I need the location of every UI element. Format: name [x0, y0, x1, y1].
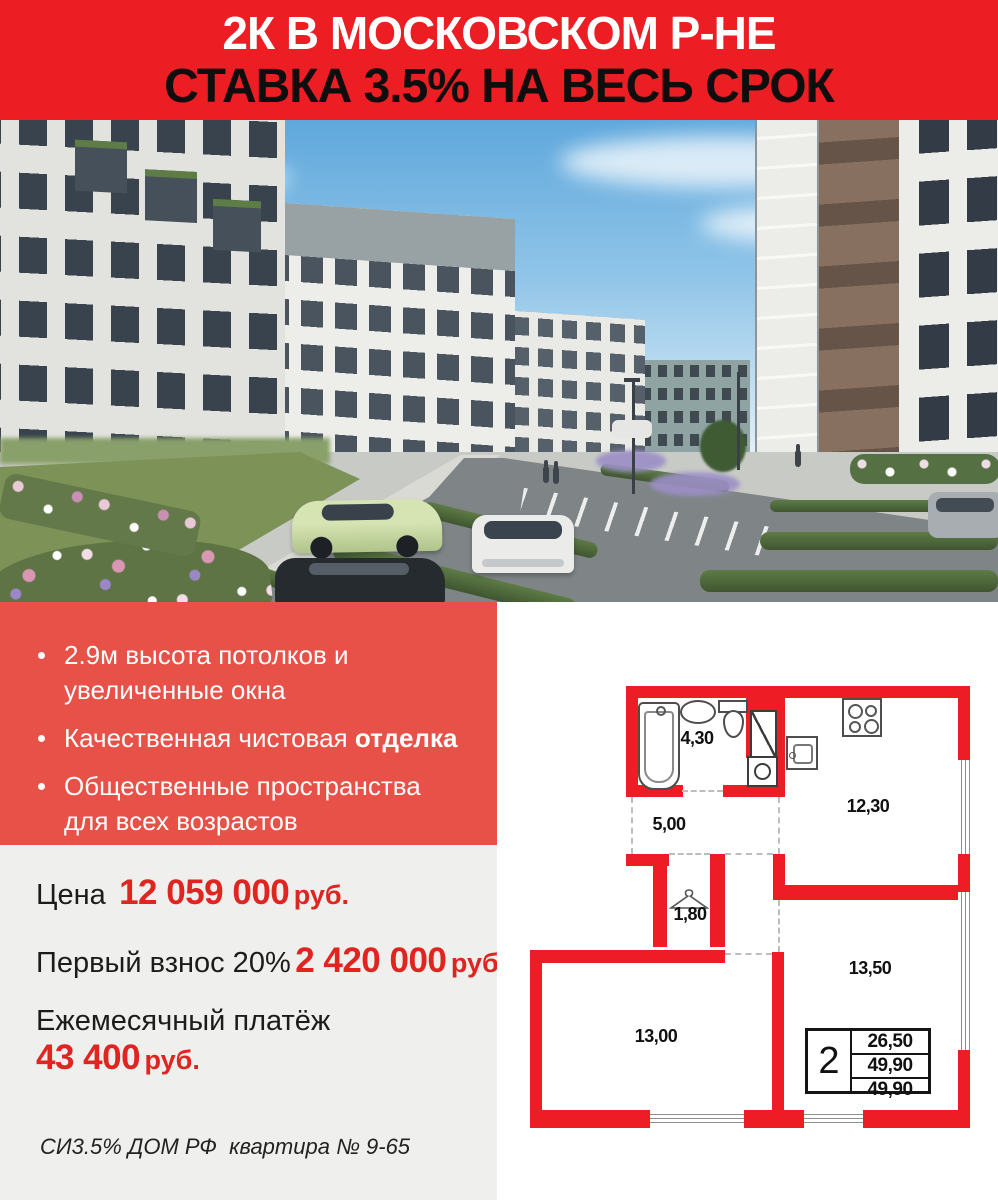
stove-icon	[842, 698, 882, 737]
price-label: Ежемесячный платёж	[36, 1005, 330, 1037]
header-line2: СТАВКА 3.5% НА ВЕСЬ СРОК	[0, 60, 998, 114]
bullet-icon	[38, 652, 45, 659]
plan-wall	[744, 1110, 804, 1128]
building-roof-band	[255, 201, 515, 271]
price-row: Цена 12 059 000 руб.	[36, 873, 349, 913]
room-area-label: 1,80	[667, 904, 713, 925]
plan-wall	[626, 698, 638, 797]
burner	[865, 705, 877, 717]
pricing-panel: Цена 12 059 000 руб. Первый взнос 20% 2 …	[0, 845, 497, 1200]
car-window	[936, 498, 994, 512]
program-note: СИ3.5% ДОМ РФ квартира № 9-65	[40, 1134, 410, 1160]
shaft-icon	[750, 710, 777, 758]
bathtub-faucet	[656, 706, 666, 716]
street-lamp-head	[624, 378, 640, 382]
plan-window	[958, 892, 970, 1050]
apartment-spec-table: 2 26,50 49,90 49,90	[805, 1028, 931, 1094]
price-label: Первый взнос 20%	[36, 947, 291, 979]
street-lamp	[737, 372, 740, 470]
plan-wall	[772, 952, 784, 1110]
hedge	[700, 570, 998, 592]
price-label: Цена	[36, 879, 106, 911]
features-list: 2.9м высота потолков и увеличенные окна …	[0, 602, 497, 839]
plan-opening	[631, 797, 633, 854]
plan-wall	[958, 686, 970, 760]
pedestrian	[553, 467, 559, 484]
feature-item: Качественная чистовая отделка	[64, 721, 464, 756]
bullet-icon	[38, 735, 45, 742]
room-area-label: 4,30	[669, 728, 725, 749]
car-distant	[612, 420, 652, 438]
features-panel: 2.9м высота потолков и увеличенные окна …	[0, 602, 497, 845]
room-area-label: 13,50	[837, 958, 903, 979]
spec-area-full: 49,90	[852, 1079, 928, 1101]
kitchen-sink-icon	[786, 736, 818, 770]
car-windshield	[484, 521, 562, 539]
car-gray	[928, 492, 998, 538]
price-unit: руб.	[145, 1045, 200, 1075]
plan-opening	[778, 900, 780, 952]
header-banner: 2К В МОСКОВСКОМ Р-НЕ СТАВКА 3.5% НА ВЕСЬ…	[0, 0, 998, 120]
plan-opening	[778, 797, 780, 854]
room-area-label: 12,30	[835, 796, 901, 817]
plan-opening	[725, 853, 773, 855]
plan-wall	[626, 686, 970, 698]
feature-text-bold: отделка	[355, 723, 458, 753]
spec-areas: 26,50 49,90 49,90	[850, 1031, 928, 1091]
toilet-bowl-icon	[723, 710, 744, 738]
plan-wall	[530, 950, 725, 963]
car-grill	[482, 559, 564, 567]
price-row: Первый взнос 20% 2 420 000 руб.	[36, 941, 506, 981]
plan-opening	[725, 953, 772, 955]
lavender-bush	[650, 472, 740, 496]
pedestrian	[795, 450, 801, 467]
plan-window	[804, 1111, 863, 1126]
washer-drum	[754, 763, 771, 780]
kitchen-sink-basin	[793, 744, 813, 764]
balcony	[213, 199, 261, 253]
spec-area-total: 49,90	[852, 1055, 928, 1079]
plan-opening	[669, 853, 710, 855]
car-windshield	[309, 563, 409, 575]
plan-wall	[863, 1110, 970, 1128]
balcony	[75, 140, 127, 194]
car-window	[322, 504, 394, 521]
rooms-count: 2	[808, 1031, 850, 1091]
room-area-label: 5,00	[641, 814, 697, 835]
feature-item: 2.9м высота потолков и увеличенные окна	[64, 638, 464, 708]
real-estate-poster: 2К В МОСКОВСКОМ Р-НЕ СТАВКА 3.5% НА ВЕСЬ…	[0, 0, 998, 1200]
balcony	[145, 169, 197, 223]
feature-text: Качественная чистовая	[64, 723, 355, 753]
bullet-icon	[38, 783, 45, 790]
feature-item: Общественные пространства для всех возра…	[64, 769, 464, 839]
price-value: 12 059 000	[119, 873, 289, 912]
room-area-label: 13,00	[623, 1026, 689, 1047]
header-line1: 2К В МОСКОВСКОМ Р-НЕ	[0, 6, 998, 60]
car-green-sedan	[292, 499, 443, 554]
plan-wall	[773, 885, 970, 900]
feature-text: 2.9м высота потолков и увеличенные окна	[64, 640, 349, 705]
residential-complex-photo	[0, 120, 998, 602]
sink-icon	[680, 700, 716, 724]
spec-area-living: 26,50	[852, 1031, 928, 1055]
burner	[849, 721, 861, 733]
plan-opening	[682, 790, 723, 792]
burner	[848, 704, 863, 719]
car-dark-suv	[275, 558, 445, 602]
car-white-suv	[472, 515, 574, 573]
plan-window	[958, 760, 970, 854]
price-value: 43 400	[36, 1038, 140, 1077]
price-unit: руб.	[294, 880, 349, 910]
plan-wall	[710, 854, 725, 947]
shrub-flowering	[850, 454, 998, 484]
plan-wall	[653, 854, 667, 947]
plan-wall	[530, 950, 542, 1128]
washing-machine-icon	[747, 756, 778, 787]
lavender-bush	[596, 450, 666, 472]
pedestrian	[543, 466, 549, 483]
price-row: Ежемесячный платёж 43 400 руб.	[36, 1005, 330, 1078]
plan-window	[650, 1111, 744, 1126]
feature-text: Общественные пространства для всех возра…	[64, 771, 421, 836]
price-value: 2 420 000	[295, 941, 446, 980]
burner	[864, 719, 879, 734]
floorplan: 4,30 5,00 12,30 1,80 13,50 13,00 2 26,50…	[497, 602, 998, 1200]
plan-wall	[530, 1110, 650, 1128]
kitchen-sink-faucet	[789, 752, 796, 759]
street-lamp	[632, 382, 635, 494]
